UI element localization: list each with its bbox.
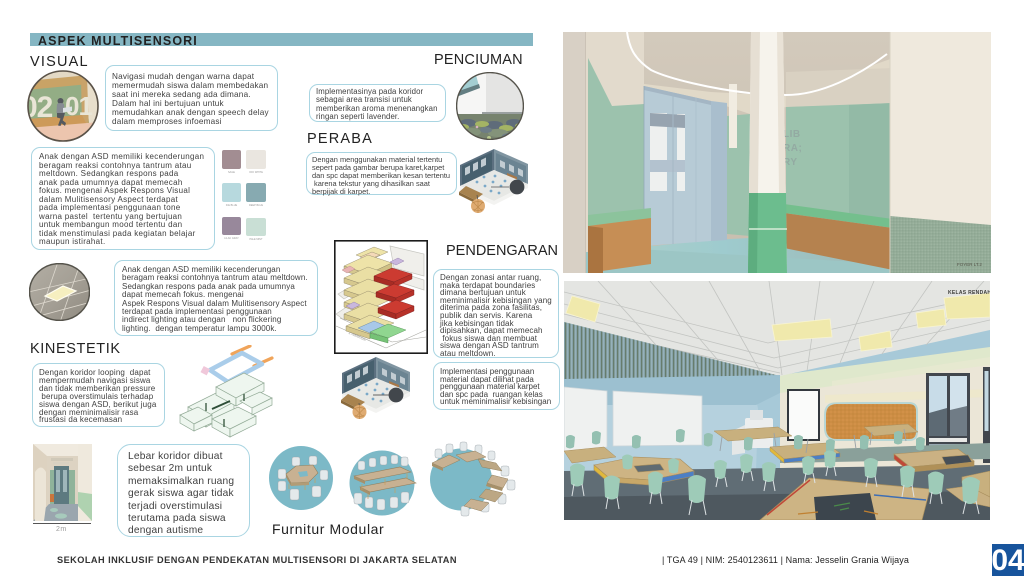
svg-text:LIB: LIB bbox=[783, 129, 801, 140]
svg-text:KELAS RENDAH: KELAS RENDAH bbox=[948, 290, 990, 296]
svg-text:FOYER LT.2: FOYER LT.2 bbox=[957, 262, 982, 267]
svg-text:RA;: RA; bbox=[783, 143, 802, 154]
svg-text:01: 01 bbox=[65, 91, 92, 121]
